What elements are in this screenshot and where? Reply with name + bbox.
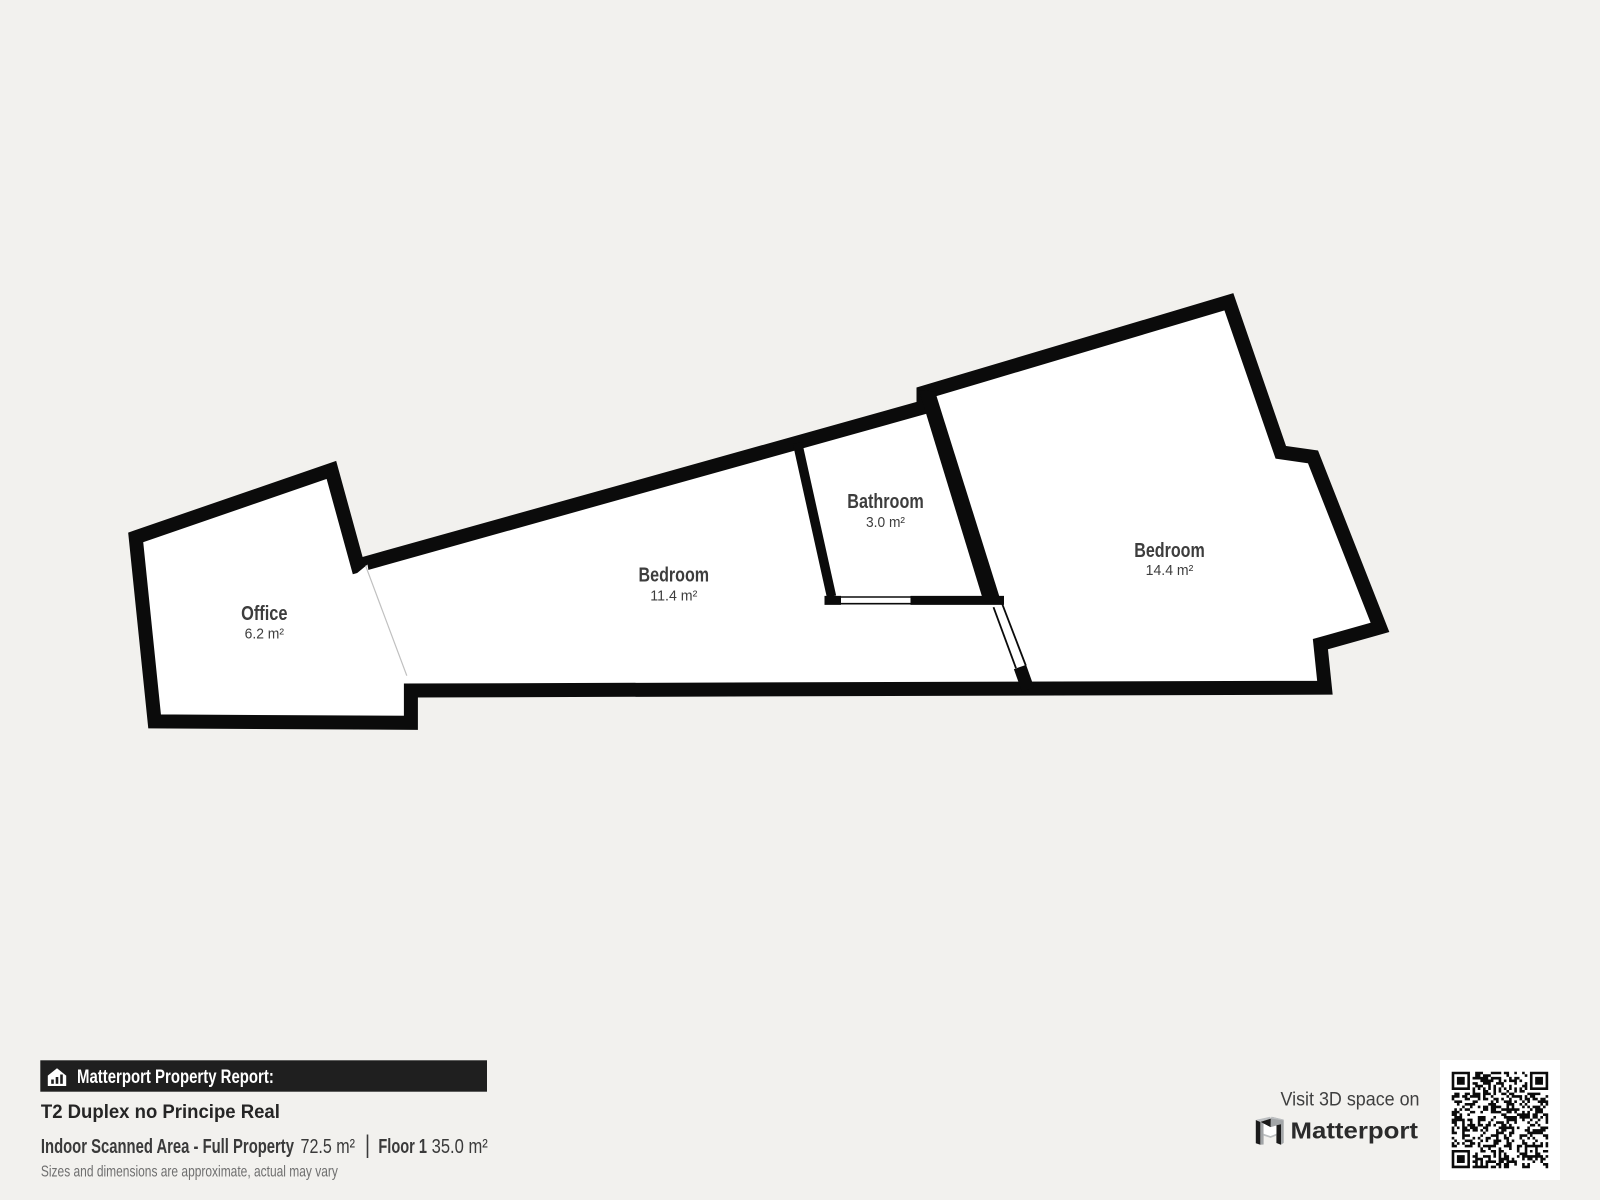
svg-text:Bedroom: Bedroom <box>1134 540 1205 562</box>
svg-text:Matterport: Matterport <box>1291 1117 1419 1143</box>
svg-text:72.5 m²: 72.5 m² <box>301 1136 356 1158</box>
svg-text:6.2 m²: 6.2 m² <box>245 627 285 643</box>
svg-text:Visit 3D space on: Visit 3D space on <box>1281 1090 1420 1111</box>
svg-text:Sizes and dimensions are appro: Sizes and dimensions are approximate, ac… <box>41 1163 338 1180</box>
svg-text:14.4 m²: 14.4 m² <box>1146 563 1194 579</box>
svg-text:35.0 m²: 35.0 m² <box>432 1136 488 1158</box>
svg-text:3.0 m²: 3.0 m² <box>866 515 905 531</box>
svg-text:Bedroom: Bedroom <box>639 565 710 587</box>
svg-text:Office: Office <box>241 603 287 625</box>
svg-text:Bathroom: Bathroom <box>847 491 924 513</box>
svg-text:T2 Duplex no Principe Real: T2 Duplex no Principe Real <box>41 1101 280 1123</box>
svg-text:Floor 1: Floor 1 <box>378 1136 427 1158</box>
svg-text:Matterport Property Report:: Matterport Property Report: <box>77 1067 274 1088</box>
svg-text:11.4 m²: 11.4 m² <box>650 589 697 605</box>
svg-text:Indoor Scanned Area - Full Pro: Indoor Scanned Area - Full Property <box>41 1136 295 1158</box>
